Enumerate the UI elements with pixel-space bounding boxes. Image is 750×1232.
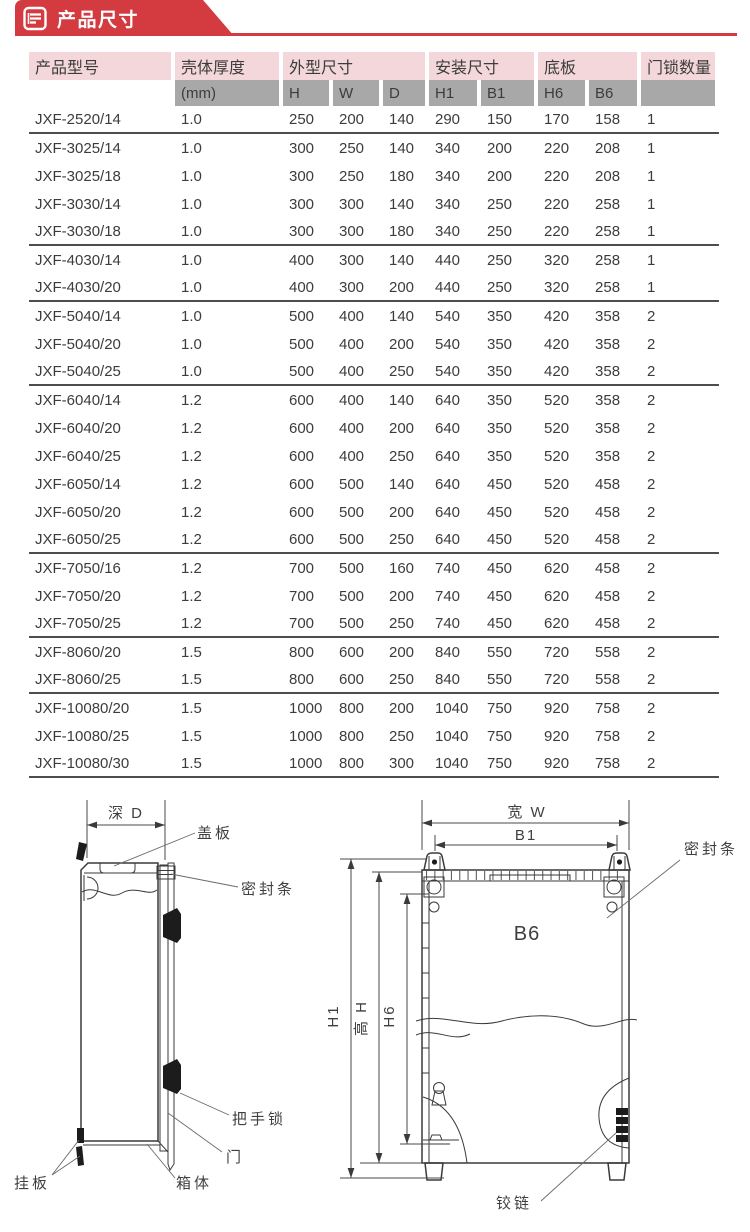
value-cell: 258 [589,190,641,218]
value-cell: 1040 [429,722,481,750]
model-cell: JXF-10080/20 [29,694,175,722]
value-cell: 180 [383,162,429,190]
value-cell: 758 [589,694,641,722]
value-cell: 200 [383,694,429,722]
value-cell: 1.0 [175,190,283,218]
table-row: JXF-3030/141.03003001403402502202581 [29,190,719,218]
value-cell: 600 [283,498,333,526]
value-cell: 640 [429,470,481,498]
value-cell: 740 [429,554,481,582]
value-cell: 750 [481,694,538,722]
value-cell: 350 [481,302,538,330]
value-cell: 200 [383,414,429,442]
value-cell: 500 [333,498,383,526]
value-cell: 640 [429,442,481,470]
page-title: 产品尺寸 [57,5,139,32]
value-cell: 740 [429,582,481,610]
value-cell: 400 [333,358,383,386]
value-cell: 800 [333,750,383,778]
value-cell: 400 [333,330,383,358]
table-row: JXF-5040/141.05004001405403504203582 [29,302,719,330]
model-cell: JXF-8060/25 [29,666,175,694]
value-cell: 1.0 [175,134,283,162]
model-cell: JXF-3025/14 [29,134,175,162]
value-cell: 350 [481,358,538,386]
model-cell: JXF-5040/20 [29,330,175,358]
value-cell: 2 [641,386,719,414]
seal-label-front: 密封条 [684,841,738,858]
col-group-outer-size: 外型尺寸 [283,52,429,80]
front-view-diagram: B6 宽 W [325,800,738,1212]
table-row: JXF-8060/251.58006002508405507205582 [29,666,719,694]
value-cell: 1000 [283,694,333,722]
value-cell: 160 [383,554,429,582]
model-cell: JXF-5040/14 [29,302,175,330]
value-cell: 640 [429,386,481,414]
table-row: JXF-5040/251.05004002505403504203582 [29,358,719,386]
value-cell: 300 [333,218,383,246]
table-row: JXF-6050/201.26005002006404505204582 [29,498,719,526]
value-cell: 170 [538,106,589,134]
value-cell: 250 [333,162,383,190]
value-cell: 540 [429,358,481,386]
model-cell: JXF-4030/20 [29,274,175,302]
value-cell: 840 [429,666,481,694]
value-cell: 720 [538,638,589,666]
model-cell: JXF-3025/18 [29,162,175,190]
value-cell: 500 [333,526,383,554]
table-row: JXF-10080/251.5100080025010407509207582 [29,722,719,750]
value-cell: 500 [333,582,383,610]
value-cell: 1 [641,246,719,274]
col-group-lock-count: 门锁数量 [641,52,719,80]
document-icon [22,5,49,32]
value-cell: 400 [283,274,333,302]
value-cell: 450 [481,582,538,610]
table-row: JXF-7050/161.27005001607404506204582 [29,554,719,582]
value-cell: 250 [481,274,538,302]
table-row: JXF-6050/141.26005001406404505204582 [29,470,719,498]
value-cell: 258 [589,274,641,302]
value-cell: 800 [283,638,333,666]
value-cell: 250 [383,722,429,750]
value-cell: 520 [538,470,589,498]
value-cell: 1.0 [175,274,283,302]
value-cell: 1.0 [175,358,283,386]
value-cell: 2 [641,302,719,330]
value-cell: 550 [481,666,538,694]
value-cell: 1.2 [175,526,283,554]
value-cell: 520 [538,498,589,526]
value-cell: 720 [538,666,589,694]
value-cell: 200 [383,638,429,666]
value-cell: 750 [481,722,538,750]
value-cell: 258 [589,246,641,274]
value-cell: 2 [641,414,719,442]
value-cell: 520 [538,414,589,442]
value-cell: 520 [538,526,589,554]
value-cell: 440 [429,274,481,302]
value-cell: 250 [383,358,429,386]
value-cell: 300 [283,218,333,246]
model-cell: JXF-3030/18 [29,218,175,246]
value-cell: 2 [641,470,719,498]
value-cell: 640 [429,414,481,442]
subheader-w: W [333,80,383,106]
table-row: JXF-2520/141.02502001402901501701581 [29,106,719,134]
value-cell: 250 [383,610,429,638]
value-cell: 1.5 [175,694,283,722]
value-cell: 800 [333,722,383,750]
model-cell: JXF-10080/25 [29,722,175,750]
value-cell: 300 [333,274,383,302]
spec-table-wrap: 产品型号 壳体厚度 外型尺寸 安装尺寸 底板 门锁数量 (mm) H W D H… [29,52,750,778]
value-cell: 600 [283,526,333,554]
value-cell: 208 [589,162,641,190]
table-row: JXF-4030/141.04003001404402503202581 [29,246,719,274]
model-cell: JXF-6050/14 [29,470,175,498]
value-cell: 180 [383,218,429,246]
subheader-b6: B6 [589,80,641,106]
value-cell: 1.2 [175,414,283,442]
hang-plate-label: 挂板 [14,1174,50,1192]
model-cell: JXF-6050/25 [29,526,175,554]
value-cell: 558 [589,638,641,666]
dim-depth-label: 深 D [108,805,144,822]
value-cell: 1 [641,162,719,190]
value-cell: 500 [333,610,383,638]
col-group-model: 产品型号 [29,52,175,80]
value-cell: 920 [538,750,589,778]
value-cell: 400 [333,442,383,470]
value-cell: 800 [283,666,333,694]
value-cell: 1.0 [175,330,283,358]
side-view-diagram: 深 D 盖板 密封条 把手锁 门 挂板 箱体 [14,800,295,1192]
value-cell: 350 [481,442,538,470]
value-cell: 758 [589,750,641,778]
value-cell: 1.5 [175,722,283,750]
value-cell: 458 [589,582,641,610]
value-cell: 458 [589,498,641,526]
value-cell: 500 [283,302,333,330]
value-cell: 840 [429,638,481,666]
value-cell: 700 [283,582,333,610]
value-cell: 300 [383,750,429,778]
value-cell: 640 [429,526,481,554]
model-cell: JXF-2520/14 [29,106,175,134]
value-cell: 1040 [429,750,481,778]
value-cell: 200 [383,582,429,610]
value-cell: 200 [333,106,383,134]
value-cell: 320 [538,246,589,274]
value-cell: 140 [383,302,429,330]
value-cell: 1.0 [175,218,283,246]
subheader-b1: B1 [481,80,538,106]
door-label: 门 [226,1149,244,1166]
table-row: JXF-3025/181.03002501803402002202081 [29,162,719,190]
value-cell: 140 [383,190,429,218]
value-cell: 600 [333,638,383,666]
value-cell: 1 [641,134,719,162]
table-row: JXF-8060/201.58006002008405507205582 [29,638,719,666]
value-cell: 250 [283,106,333,134]
value-cell: 340 [429,218,481,246]
value-cell: 600 [283,386,333,414]
subheader-lock [641,80,719,106]
value-cell: 600 [283,442,333,470]
value-cell: 350 [481,330,538,358]
value-cell: 250 [383,666,429,694]
value-cell: 300 [333,246,383,274]
value-cell: 140 [383,470,429,498]
value-cell: 1.0 [175,302,283,330]
value-cell: 500 [283,358,333,386]
table-row: JXF-6040/141.26004001406403505203582 [29,386,719,414]
value-cell: 340 [429,162,481,190]
value-cell: 500 [283,330,333,358]
value-cell: 300 [333,190,383,218]
value-cell: 520 [538,386,589,414]
value-cell: 1 [641,106,719,134]
value-cell: 200 [481,134,538,162]
table-row: JXF-10080/301.5100080030010407509207582 [29,750,719,778]
value-cell: 500 [333,554,383,582]
value-cell: 200 [383,330,429,358]
foot-right [608,1163,626,1180]
foot-left [425,1163,443,1180]
value-cell: 1.0 [175,106,283,134]
table-row: JXF-3025/141.03002501403402002202081 [29,134,719,162]
dim-b1-label: B1 [515,827,537,844]
value-cell: 540 [429,330,481,358]
value-cell: 740 [429,610,481,638]
value-cell: 1 [641,218,719,246]
value-cell: 300 [283,190,333,218]
model-cell: JXF-7050/16 [29,554,175,582]
value-cell: 358 [589,414,641,442]
hang-plate-top [76,842,87,861]
value-cell: 2 [641,666,719,694]
value-cell: 1.5 [175,666,283,694]
value-cell: 2 [641,610,719,638]
model-cell: JXF-6050/20 [29,498,175,526]
value-cell: 140 [383,246,429,274]
value-cell: 640 [429,498,481,526]
box-body-label: 箱体 [176,1175,212,1192]
model-cell: JXF-7050/20 [29,582,175,610]
value-cell: 520 [538,442,589,470]
value-cell: 200 [481,162,538,190]
mounting-ear-left [424,853,445,870]
value-cell: 1.2 [175,442,283,470]
value-cell: 140 [383,386,429,414]
model-cell: JXF-7050/25 [29,610,175,638]
dim-depth: 深 D [87,800,165,860]
value-cell: 140 [383,134,429,162]
dim-width-label: 宽 W [507,804,546,821]
value-cell: 1.0 [175,162,283,190]
value-cell: 1000 [283,750,333,778]
value-cell: 700 [283,554,333,582]
value-cell: 358 [589,358,641,386]
header-sub-row: (mm) H W D H1 B1 H6 B6 [29,80,719,106]
handle-lock-label: 把手锁 [232,1111,286,1128]
value-cell: 1.2 [175,386,283,414]
value-cell: 500 [333,470,383,498]
subheader-h1: H1 [429,80,481,106]
door-panel-inner [160,865,168,1151]
value-cell: 450 [481,526,538,554]
value-cell: 800 [333,694,383,722]
value-cell: 220 [538,162,589,190]
value-cell: 400 [333,386,383,414]
table-row: JXF-7050/201.27005002007404506204582 [29,582,719,610]
subheader-mm: (mm) [175,80,283,106]
section-banner: 产品尺寸 [0,0,750,36]
value-cell: 220 [538,218,589,246]
value-cell: 340 [429,190,481,218]
model-cell: JXF-3030/14 [29,190,175,218]
value-cell: 600 [283,470,333,498]
value-cell: 350 [481,414,538,442]
handle-lock-upper [163,908,181,943]
dim-b1: B1 [435,827,617,851]
value-cell: 250 [481,246,538,274]
value-cell: 140 [383,106,429,134]
value-cell: 558 [589,666,641,694]
value-cell: 150 [481,106,538,134]
value-cell: 1.2 [175,554,283,582]
col-group-thickness: 壳体厚度 [175,52,283,80]
value-cell: 2 [641,582,719,610]
value-cell: 200 [383,498,429,526]
screw-bosses [424,877,624,912]
value-cell: 420 [538,358,589,386]
value-cell: 540 [429,302,481,330]
value-cell: 600 [333,666,383,694]
value-cell: 250 [333,134,383,162]
col-group-install-size: 安装尺寸 [429,52,538,80]
table-row: JXF-6050/251.26005002506404505204582 [29,526,719,554]
value-cell: 250 [383,442,429,470]
value-cell: 1.2 [175,470,283,498]
value-cell: 1040 [429,694,481,722]
value-cell: 220 [538,134,589,162]
value-cell: 1.5 [175,750,283,778]
value-cell: 450 [481,498,538,526]
value-cell: 340 [429,134,481,162]
subheader-blank [29,80,175,106]
value-cell: 2 [641,330,719,358]
dim-h6-label: H6 [381,1004,398,1027]
value-cell: 358 [589,302,641,330]
value-cell: 450 [481,554,538,582]
value-cell: 1.2 [175,610,283,638]
model-cell: JXF-5040/25 [29,358,175,386]
model-cell: JXF-4030/14 [29,246,175,274]
value-cell: 1 [641,190,719,218]
value-cell: 420 [538,330,589,358]
col-group-baseplate: 底板 [538,52,641,80]
value-cell: 1.2 [175,582,283,610]
value-cell: 2 [641,554,719,582]
value-cell: 2 [641,750,719,778]
table-row: JXF-3030/181.03003001803402502202581 [29,218,719,246]
table-row: JXF-7050/251.27005002507404506204582 [29,610,719,638]
value-cell: 750 [481,750,538,778]
value-cell: 2 [641,358,719,386]
table-row: JXF-5040/201.05004002005403504203582 [29,330,719,358]
value-cell: 1 [641,274,719,302]
value-cell: 400 [283,246,333,274]
model-cell: JXF-8060/20 [29,638,175,666]
value-cell: 1.0 [175,246,283,274]
value-cell: 208 [589,134,641,162]
spec-table-body: JXF-2520/141.02502001402901501701581JXF-… [29,106,719,778]
value-cell: 1.2 [175,498,283,526]
value-cell: 620 [538,554,589,582]
value-cell: 1000 [283,722,333,750]
header-group-row: 产品型号 壳体厚度 外型尺寸 安装尺寸 底板 门锁数量 [29,52,719,80]
table-row: JXF-4030/201.04003002004402503202581 [29,274,719,302]
value-cell: 250 [383,526,429,554]
door-panel-outer [168,863,174,1170]
table-row: JXF-6040/251.26004002506403505203582 [29,442,719,470]
value-cell: 920 [538,694,589,722]
value-cell: 300 [283,162,333,190]
subheader-d: D [383,80,429,106]
value-cell: 2 [641,526,719,554]
model-cell: JXF-6040/20 [29,414,175,442]
value-cell: 458 [589,470,641,498]
value-cell: 220 [538,190,589,218]
cover-label: 盖板 [197,824,233,842]
dim-h1-label: H1 [325,1004,342,1027]
banner-main: 产品尺寸 [15,0,203,36]
value-cell: 758 [589,722,641,750]
value-cell: 250 [481,218,538,246]
value-cell: 400 [333,414,383,442]
value-cell: 358 [589,330,641,358]
value-cell: 358 [589,386,641,414]
value-cell: 2 [641,442,719,470]
banner-slant [203,0,234,36]
mounting-ear-right [609,853,630,870]
model-cell: JXF-6040/25 [29,442,175,470]
value-cell: 458 [589,610,641,638]
value-cell: 2 [641,498,719,526]
value-cell: 2 [641,694,719,722]
seal-label-side: 密封条 [241,881,295,898]
value-cell: 620 [538,610,589,638]
value-cell: 2 [641,722,719,750]
value-cell: 200 [383,274,429,302]
value-cell: 1.5 [175,638,283,666]
value-cell: 440 [429,246,481,274]
subheader-h6: H6 [538,80,589,106]
model-cell: JXF-10080/30 [29,750,175,778]
table-row: JXF-6040/201.26004002006403505203582 [29,414,719,442]
model-cell: JXF-6040/14 [29,386,175,414]
table-row: JXF-10080/201.5100080020010407509207582 [29,694,719,722]
value-cell: 700 [283,610,333,638]
dim-b6-label: B6 [514,923,540,945]
value-cell: 450 [481,470,538,498]
subheader-h: H [283,80,333,106]
value-cell: 250 [481,190,538,218]
value-cell: 550 [481,638,538,666]
dim-h-label: 高 H [353,1000,370,1036]
